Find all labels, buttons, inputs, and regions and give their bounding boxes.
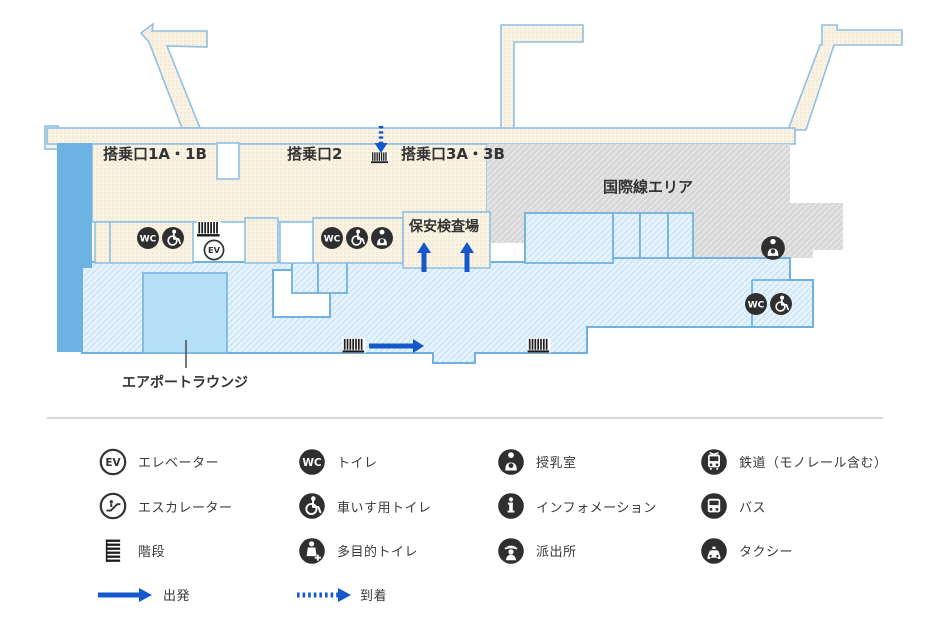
arrival-room <box>525 213 613 263</box>
legend-label: 鉄道（モノレール含む） <box>739 455 888 471</box>
wheelchair-toilet-icon <box>162 227 184 249</box>
airport-lounge-shape <box>143 273 227 353</box>
legend-label: エスカレーター <box>138 501 233 516</box>
wheelchair-toilet-icon <box>770 293 792 315</box>
wheelchair-toilet-icon <box>346 227 368 249</box>
terminal-floor-map: WC <box>0 0 930 631</box>
escalator-icon <box>101 494 125 518</box>
hall-cutout <box>217 143 239 179</box>
arrival-room <box>640 213 668 258</box>
departure-corridor <box>47 128 795 144</box>
legend-label: タクシー <box>739 545 793 560</box>
police-box-icon <box>498 538 524 564</box>
stairs-icon <box>528 338 551 353</box>
departure-arrow <box>98 588 152 602</box>
gate-2-label: 搭乗口2 <box>287 145 342 163</box>
legend-label: インフォメーション <box>536 501 657 516</box>
legend-label: 多目的トイレ <box>337 544 418 560</box>
gate-3a-3b-label: 搭乗口3A・3B <box>401 145 505 163</box>
toilet-icon <box>137 227 159 249</box>
legend-label: 階段 <box>138 545 165 560</box>
legend-label: 出発 <box>163 589 190 604</box>
map-legend: エレベーター エスカレーター 階段 出発 トイレ 車いす用トイレ 多目的トイレ … <box>98 449 888 604</box>
legend-label: 派出所 <box>536 545 577 560</box>
arrival-room <box>613 213 640 258</box>
gate-1a-1b-label: 搭乗口1A・1B <box>103 145 207 163</box>
legend-label: トイレ <box>337 456 378 471</box>
floor-map: 搭乗口1A・1B 搭乗口2 搭乗口3A・3B 保安検査場 国際線エリア エアポー… <box>45 24 902 391</box>
nursing-room-icon <box>761 236 785 260</box>
toilet-icon <box>321 227 343 249</box>
airport-lounge-label: エアポートラウンジ <box>122 374 248 391</box>
wheelchair-toilet-icon <box>299 493 325 519</box>
service-room <box>280 222 313 263</box>
toilet-icon <box>299 449 325 475</box>
jet-bridge-left <box>141 24 207 128</box>
legend-label: 到着 <box>360 588 387 604</box>
arrival-arrow <box>297 588 351 602</box>
toilet-icon <box>745 293 767 315</box>
jet-bridge-middle <box>501 25 583 130</box>
elevator-icon <box>204 240 223 259</box>
service-room <box>245 218 278 263</box>
taxi-icon <box>701 538 727 564</box>
stairs-icon <box>371 152 389 164</box>
legend-label: 授乳室 <box>536 455 577 471</box>
elevator-icon <box>101 450 125 474</box>
security-check-label: 保安検査場 <box>408 218 479 235</box>
nursing-room-icon <box>498 449 524 475</box>
legend-label: エレベーター <box>138 456 219 471</box>
train-icon <box>701 449 727 475</box>
stairs-icon <box>343 338 366 353</box>
airport-floor-map-page: WC <box>0 0 930 631</box>
nursing-room-icon <box>371 227 393 249</box>
jet-bridge-right <box>788 25 902 130</box>
information-icon <box>498 493 524 519</box>
arrival-room <box>668 213 693 258</box>
legend-label: バス <box>739 501 766 516</box>
legend-label: 車いす用トイレ <box>337 501 432 516</box>
international-area-label: 国際線エリア <box>603 178 693 196</box>
multipurpose-toilet-icon <box>299 538 325 564</box>
stairs-icon <box>197 221 221 237</box>
stairs-icon <box>104 538 123 565</box>
bus-icon <box>701 493 727 519</box>
